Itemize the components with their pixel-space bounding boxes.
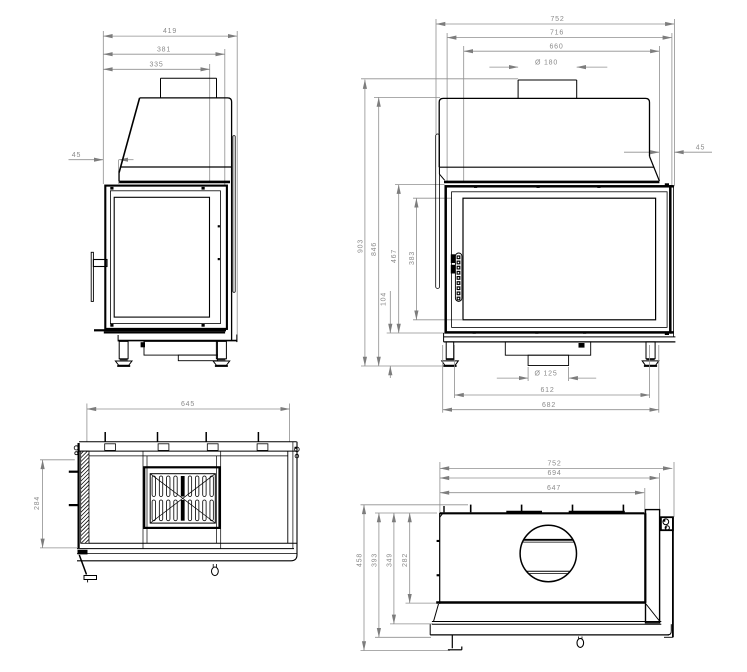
svg-text:45: 45	[696, 144, 705, 151]
svg-text:752: 752	[547, 461, 561, 468]
svg-text:903: 903	[357, 239, 364, 253]
svg-text:383: 383	[409, 251, 416, 265]
svg-text:612: 612	[540, 387, 554, 394]
svg-text:419: 419	[163, 28, 177, 35]
svg-text:381: 381	[157, 46, 171, 53]
svg-text:Ø 180: Ø 180	[535, 59, 558, 66]
svg-text:284: 284	[34, 496, 41, 510]
svg-text:393: 393	[371, 553, 378, 567]
svg-text:647: 647	[547, 485, 561, 492]
svg-text:335: 335	[149, 61, 163, 68]
svg-text:645: 645	[181, 401, 195, 408]
svg-text:846: 846	[371, 242, 378, 256]
svg-text:694: 694	[547, 470, 561, 477]
svg-text:282: 282	[402, 553, 409, 567]
svg-text:467: 467	[391, 249, 398, 263]
svg-text:716: 716	[550, 30, 564, 37]
svg-text:104: 104	[381, 292, 388, 306]
svg-text:349: 349	[386, 553, 393, 567]
svg-text:Ø 125: Ø 125	[534, 370, 557, 377]
svg-text:682: 682	[542, 402, 556, 409]
svg-text:660: 660	[549, 43, 563, 50]
svg-text:752: 752	[550, 16, 564, 23]
svg-text:458: 458	[356, 553, 363, 567]
svg-text:45: 45	[72, 152, 81, 159]
